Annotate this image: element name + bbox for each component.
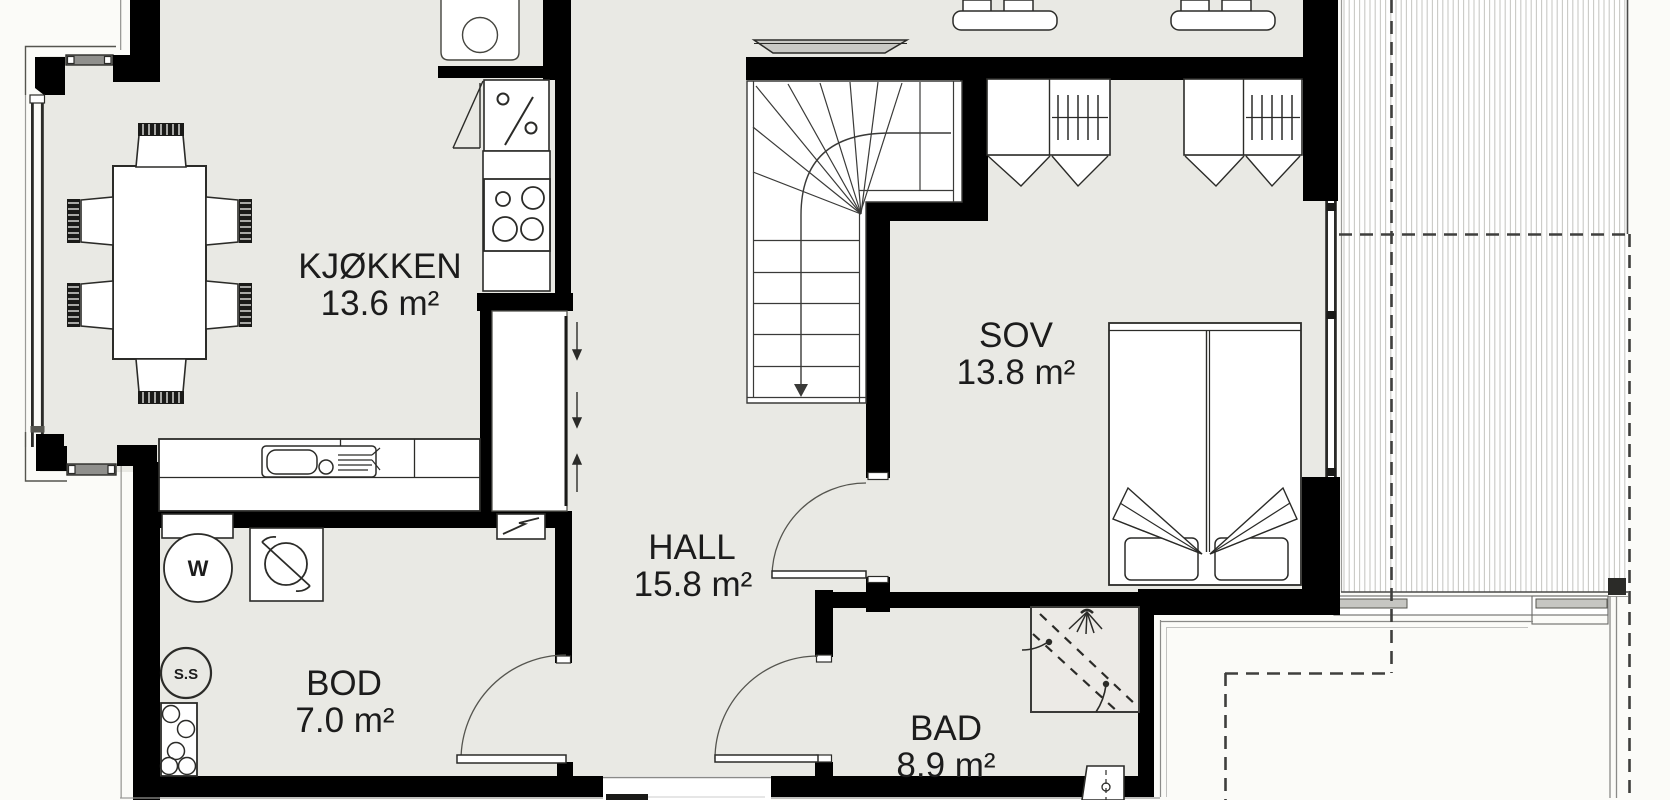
svg-text:S.S: S.S [174, 666, 198, 683]
svg-text:W: W [188, 556, 209, 581]
svg-text:13.6 m²: 13.6 m² [321, 284, 440, 323]
svg-text:SOV: SOV [979, 316, 1054, 355]
svg-text:BOD: BOD [306, 664, 382, 703]
svg-text:15.8 m²: 15.8 m² [634, 565, 753, 604]
svg-text:7.0 m²: 7.0 m² [295, 701, 394, 740]
svg-text:13.8 m²: 13.8 m² [957, 353, 1076, 392]
svg-text:KJØKKEN: KJØKKEN [298, 247, 461, 286]
svg-text:8.9 m²: 8.9 m² [896, 746, 995, 785]
svg-text:HALL: HALL [648, 528, 736, 567]
svg-text:BAD: BAD [910, 709, 982, 748]
